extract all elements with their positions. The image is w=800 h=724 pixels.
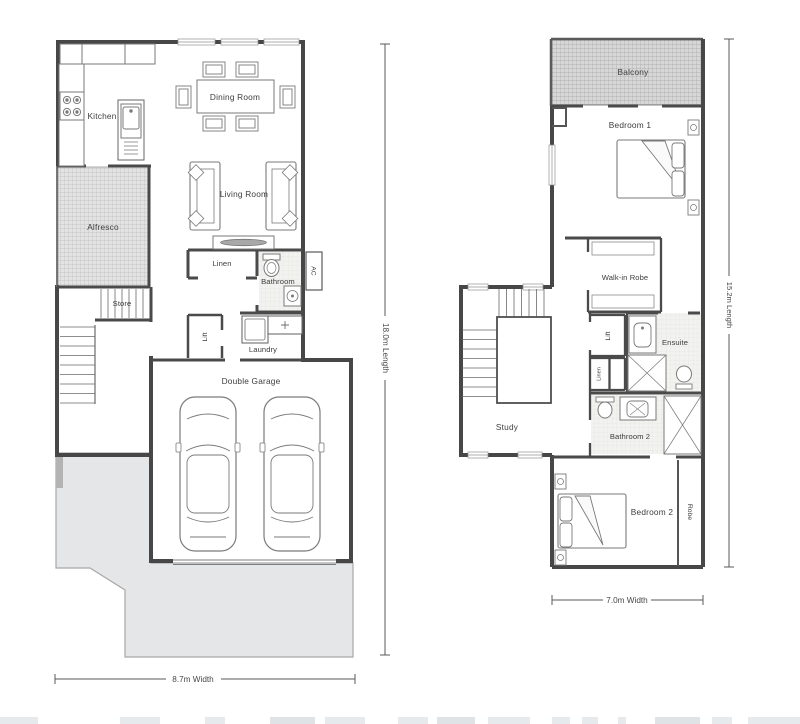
bedroom1-furniture bbox=[617, 120, 699, 215]
bedroom2-furniture bbox=[555, 474, 626, 565]
robe-label: Robe bbox=[686, 504, 693, 520]
car-right bbox=[260, 397, 324, 551]
walk-in-robe-label: Walk-in Robe bbox=[602, 273, 649, 282]
bedroom2-label: Bedroom 2 bbox=[631, 507, 674, 517]
first-lift-label: Lift bbox=[605, 331, 612, 340]
ground-linen-label: Linen bbox=[212, 259, 231, 268]
cooktop bbox=[60, 92, 84, 120]
driveway-wall-stub bbox=[56, 455, 63, 488]
stair-void bbox=[497, 317, 551, 403]
kitchen-fixtures bbox=[59, 44, 155, 166]
ac-label: AC bbox=[310, 266, 317, 276]
study-label: Study bbox=[496, 422, 519, 432]
bathroom2-label: Bathroom 2 bbox=[610, 432, 650, 441]
first-floor-plan: Balcony Bedroom 1 Walk-in Robe Lift Line… bbox=[461, 39, 703, 567]
balcony-label: Balcony bbox=[618, 67, 650, 77]
sofa-left bbox=[188, 162, 220, 230]
laundry-label: Laundry bbox=[249, 345, 277, 354]
ground-lift-label: Lift bbox=[202, 332, 209, 341]
first-width-label: 7.0m Width bbox=[606, 596, 648, 605]
laundry-fixtures bbox=[242, 316, 302, 343]
ensuite-toilet bbox=[677, 366, 692, 382]
living-room-furniture bbox=[188, 162, 298, 249]
first-length-label: 15.2m Length bbox=[725, 282, 734, 328]
living-room-label: Living Room bbox=[220, 189, 268, 199]
floor-plan-page: AC bbox=[0, 0, 800, 724]
bedroom1-notch bbox=[552, 108, 566, 126]
bathroom2-toilet bbox=[598, 402, 612, 418]
ground-floor-plan: AC bbox=[56, 39, 353, 657]
ground-length-label: 18.0m Length bbox=[381, 323, 390, 374]
ensuite-label: Ensuite bbox=[662, 338, 688, 347]
ground-top-windows bbox=[178, 39, 299, 45]
tv bbox=[221, 239, 267, 245]
car-left bbox=[176, 397, 240, 551]
bathroom2-toilet-tank bbox=[596, 397, 614, 402]
bottom-edge-artifact bbox=[0, 717, 800, 724]
first-outer-walls bbox=[461, 39, 703, 567]
first-floor-stairs bbox=[462, 289, 551, 403]
first-floor-windows bbox=[468, 145, 555, 458]
alfresco-label: Alfresco bbox=[87, 222, 119, 232]
store-label: Store bbox=[113, 299, 132, 308]
first-linen-label: Linen bbox=[596, 367, 602, 381]
bedroom1-label: Bedroom 1 bbox=[609, 120, 652, 130]
floor-plan-drawing: AC bbox=[0, 0, 800, 724]
dining-room-label: Dining Room bbox=[210, 92, 260, 102]
double-garage-label: Double Garage bbox=[222, 376, 281, 386]
bathroom-label: Bathroom bbox=[261, 277, 295, 286]
kitchen-label: Kitchen bbox=[87, 111, 116, 121]
sofa-right bbox=[266, 162, 298, 230]
ground-width-label: 8.7m Width bbox=[172, 675, 214, 684]
ac-unit: AC bbox=[306, 252, 322, 290]
